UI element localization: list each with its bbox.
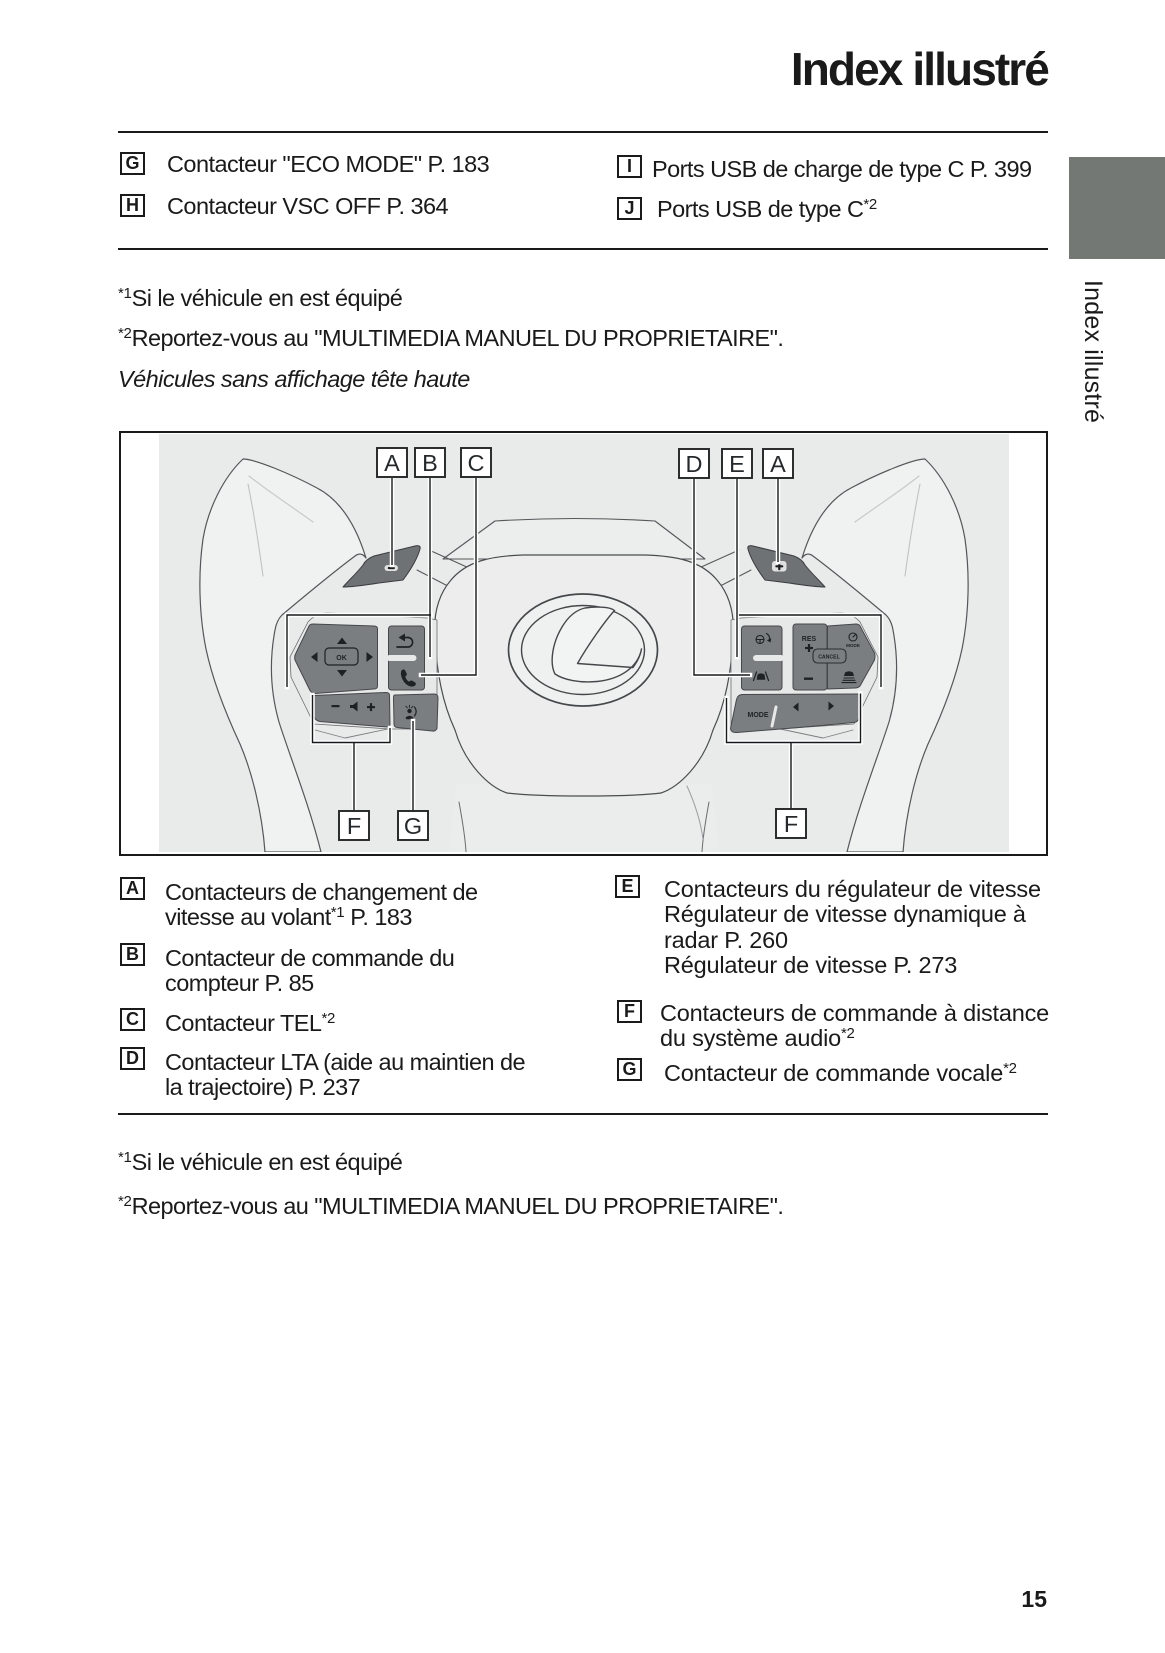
svg-text:E: E xyxy=(729,451,745,477)
svg-text:D: D xyxy=(686,451,703,477)
svg-text:B: B xyxy=(422,450,438,476)
svg-text:F: F xyxy=(347,813,361,839)
svg-text:A: A xyxy=(770,451,786,477)
svg-text:CANCEL: CANCEL xyxy=(818,655,840,661)
svg-text:C: C xyxy=(468,450,485,476)
svg-text:A: A xyxy=(384,450,400,476)
svg-text:MODE: MODE xyxy=(846,643,860,648)
svg-text:OK: OK xyxy=(336,655,347,662)
svg-text:F: F xyxy=(784,811,798,837)
svg-text:G: G xyxy=(404,813,422,839)
svg-text:RES: RES xyxy=(802,636,817,643)
svg-text:MODE: MODE xyxy=(748,712,769,719)
